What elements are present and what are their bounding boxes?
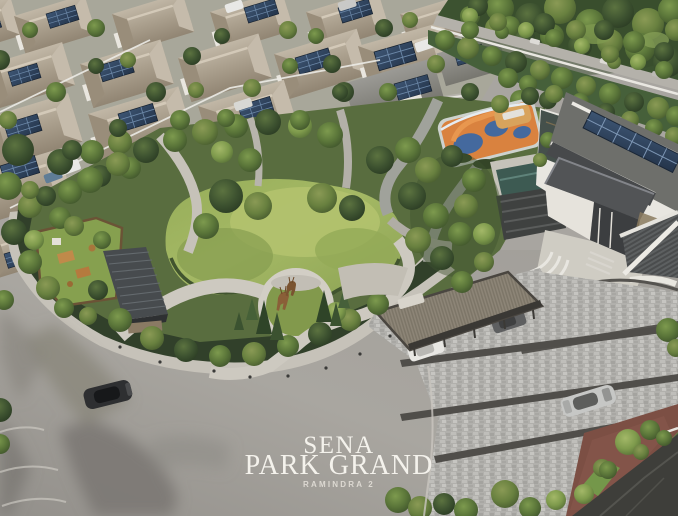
svg-text:PARK GRAND: PARK GRAND xyxy=(245,450,434,481)
svg-text:RAMINDRA 2: RAMINDRA 2 xyxy=(303,480,375,489)
